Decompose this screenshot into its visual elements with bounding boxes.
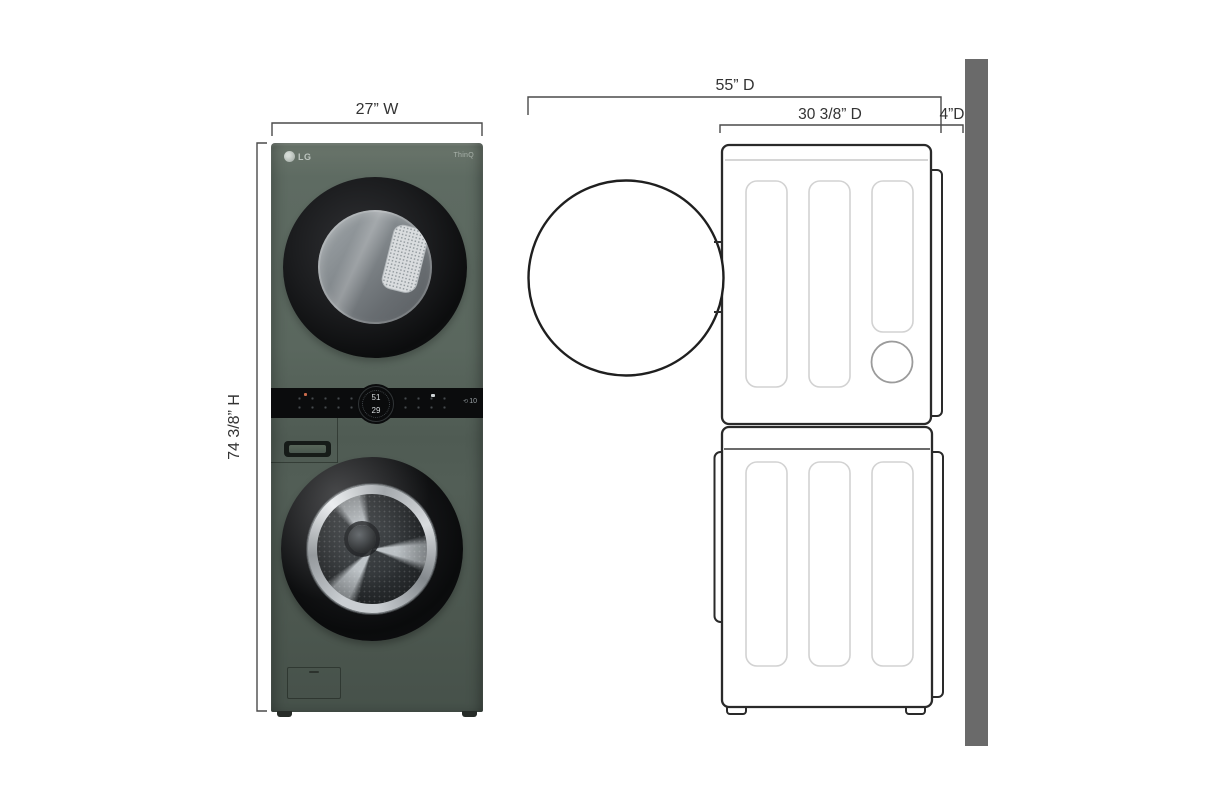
dispenser-seam-vertical bbox=[337, 418, 338, 462]
lint-filter bbox=[380, 223, 431, 296]
dispenser-seam-horizontal bbox=[271, 462, 338, 463]
control-dial: 51 29 bbox=[358, 386, 394, 422]
control-icons-right bbox=[399, 394, 455, 413]
dial-top-readout: 51 bbox=[359, 393, 393, 402]
dryer-side-body bbox=[722, 145, 931, 424]
washer-door-glare bbox=[281, 457, 463, 641]
power-led-icon bbox=[431, 394, 435, 397]
dryer-door bbox=[283, 177, 467, 358]
dispenser-drawer-handle bbox=[284, 441, 331, 457]
washtower-dimension-diagram: 27” W 74 3/8” H 55” D 30 3/8” D 4”D LG T… bbox=[0, 0, 1214, 806]
washtower-front-view: LG ThinQ 51 29 10 bbox=[271, 143, 483, 712]
dial-bottom-readout: 29 bbox=[359, 406, 393, 415]
lg-logo: LG bbox=[284, 151, 312, 162]
dryer-door-glass bbox=[318, 210, 432, 324]
total-depth-dimension-line bbox=[528, 97, 941, 133]
unit-depth-dimension-line bbox=[720, 125, 941, 133]
warranty-badge: 10 bbox=[463, 398, 477, 405]
width-dimension-label: 27” W bbox=[356, 101, 400, 118]
height-dimension-label: 74 3/8” H bbox=[226, 394, 243, 460]
door-swing-circle bbox=[529, 181, 724, 376]
unit-depth-dimension-label: 30 3/8” D bbox=[798, 106, 862, 123]
width-dimension-line bbox=[272, 123, 482, 136]
front-foot-right bbox=[462, 711, 477, 717]
thinq-badge: ThinQ bbox=[453, 152, 474, 159]
wall-clearance-dimension-line bbox=[941, 125, 963, 133]
height-dimension-line bbox=[257, 143, 267, 711]
washer-door bbox=[281, 457, 463, 641]
lg-logo-text: LG bbox=[298, 152, 312, 162]
front-foot-left bbox=[277, 711, 292, 717]
status-led-icon bbox=[304, 393, 307, 396]
lg-logo-icon bbox=[284, 151, 295, 162]
control-panel: 51 29 10 bbox=[271, 388, 483, 418]
wall-clearance-dimension-label: 4”D bbox=[940, 106, 965, 123]
total-depth-dimension-label: 55” D bbox=[715, 77, 754, 94]
wall bbox=[965, 59, 988, 746]
side-view-drawing: 27” W 74 3/8” H 55” D 30 3/8” D 4”D bbox=[0, 0, 1214, 806]
control-icons-left bbox=[293, 394, 353, 413]
service-access-panel bbox=[287, 667, 341, 699]
